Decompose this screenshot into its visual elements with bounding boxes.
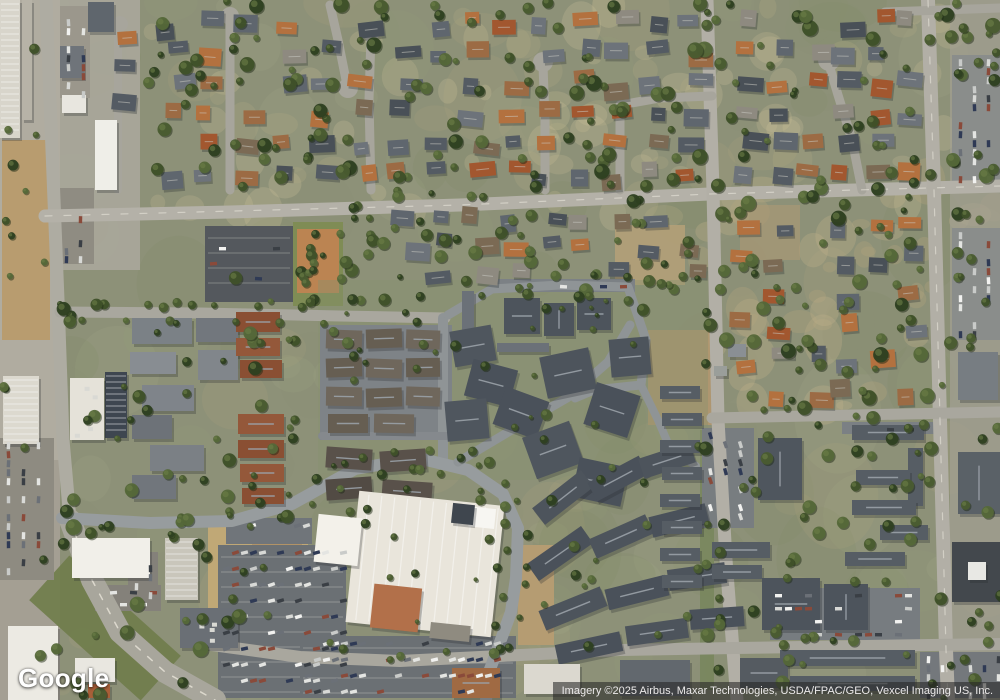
imagery-attribution: Imagery ©2025 Airbus, Maxar Technologies… bbox=[553, 682, 1000, 700]
satellite-imagery bbox=[0, 0, 1000, 700]
satellite-map[interactable]: Google Imagery ©2025 Airbus, Maxar Techn… bbox=[0, 0, 1000, 700]
google-logo[interactable]: Google bbox=[18, 663, 109, 694]
